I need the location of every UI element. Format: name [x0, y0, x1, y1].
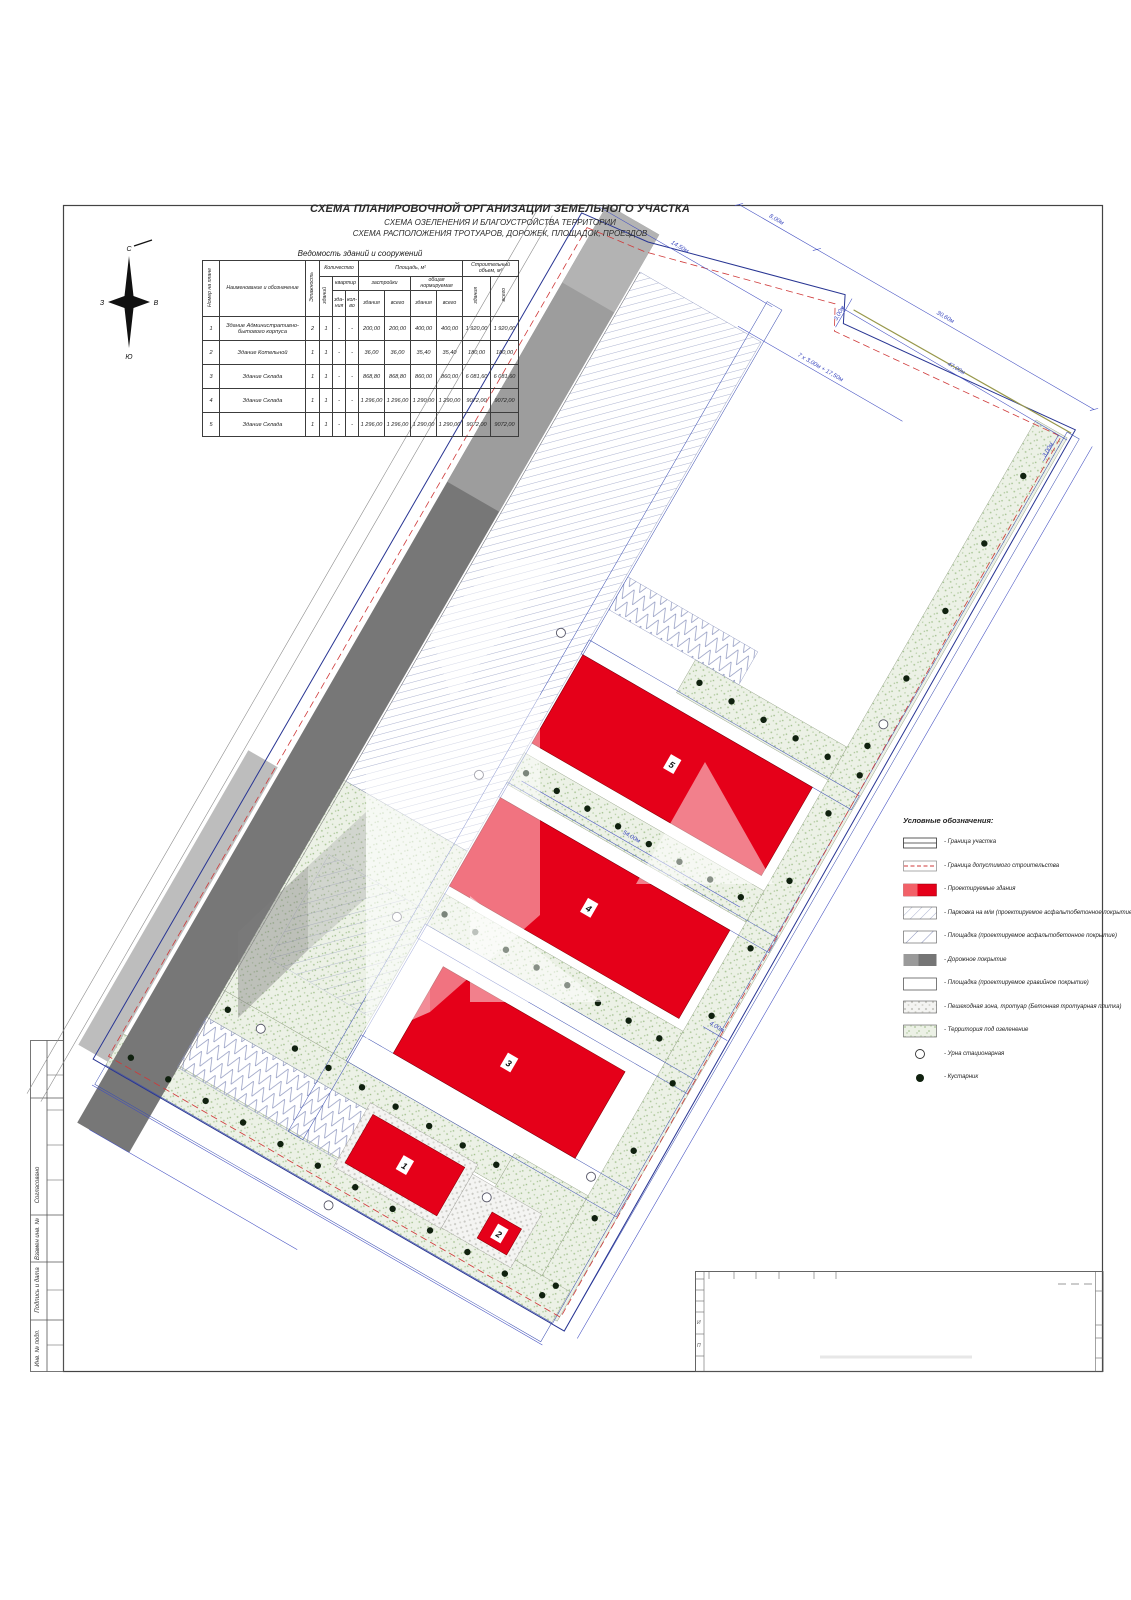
table-cell: 6 081,60: [491, 365, 519, 389]
table-cell: Здание Склада: [220, 413, 306, 437]
margin-label-invnum: Инв. № подл.: [35, 1329, 41, 1366]
col-area: Площадь, м²: [359, 261, 463, 277]
table-cell: -: [333, 413, 346, 437]
legend-label: - Граница участка: [944, 839, 996, 846]
table-cell: 5: [203, 413, 220, 437]
table-cell: -: [346, 389, 359, 413]
col-vol-total: всего: [502, 288, 508, 301]
table-title: Ведомость зданий и сооружений: [202, 249, 518, 258]
compass-south: Ю: [125, 354, 132, 361]
col-apt-bld: зда-ния: [333, 291, 346, 317]
table-cell: -: [333, 365, 346, 389]
col-qty-apt: квартир: [333, 277, 359, 291]
table-cell: Здание Склада: [220, 365, 306, 389]
table-cell: 1: [306, 341, 320, 365]
table-cell: 1: [320, 365, 333, 389]
bush-icon: [903, 1071, 937, 1085]
legend-item-asphalt: - Площадка (проектируемое асфальтобетонн…: [903, 930, 1113, 943]
col-norm-bld: здания: [411, 291, 437, 317]
table-row: 1Здание Административно-бытового корпуса…: [203, 317, 519, 341]
legend-label: - Дорожное покрытие: [944, 957, 1006, 964]
pedestrian-swatch-icon: [903, 1000, 937, 1014]
table-cell: -: [333, 341, 346, 365]
table-cell: 200,00: [359, 317, 385, 341]
compass-west: З: [100, 300, 105, 307]
legend-item-pedestrian: - Пешеходная зона, тротуар (Бетонная тро…: [903, 1001, 1113, 1014]
setback-swatch-icon: [903, 859, 937, 873]
asphalt-swatch-icon: [903, 930, 937, 944]
table-cell: 36,00: [359, 341, 385, 365]
col-floors: Этажность: [310, 272, 316, 302]
table-cell: 1 296,00: [359, 413, 385, 437]
table-cell: -: [346, 341, 359, 365]
road-swatch-icon: [903, 953, 937, 967]
table-cell: 1 296,00: [385, 389, 411, 413]
table-cell: 9072,00: [491, 389, 519, 413]
col-name: Наименование и обозначение: [220, 261, 306, 317]
table-cell: 1: [306, 365, 320, 389]
compass-arrow: [134, 240, 152, 246]
table-cell: Здание Котельной: [220, 341, 306, 365]
table-row: 5Здание Склада11--1 296,001 296,001 290,…: [203, 413, 519, 437]
table-cell: Здание Склада: [220, 389, 306, 413]
parking-swatch-icon: [903, 906, 937, 920]
table-cell: 1: [320, 317, 333, 341]
table-cell: 1 920,00: [463, 317, 491, 341]
col-norm-total: всего: [437, 291, 463, 317]
table-row: 3Здание Склада11--868,80868,80860,00860,…: [203, 365, 519, 389]
table-cell: 180,00: [463, 341, 491, 365]
dimension-label: 14,50м: [670, 240, 690, 255]
table-cell: Здание Административно-бытового корпуса: [220, 317, 306, 341]
col-num: Номер на плане: [208, 268, 214, 307]
table-cell: 1 296,00: [385, 413, 411, 437]
legend-label: - Пешеходная зона, тротуар (Бетонная тро…: [944, 1004, 1121, 1011]
table-cell: 1 290,00: [437, 389, 463, 413]
table-cell: 2: [203, 341, 220, 365]
building-swatch-icon: [903, 883, 937, 897]
legend-item-buildings: - Проектируемые здания: [903, 883, 1113, 896]
compass-rose: С Ю З В: [100, 240, 159, 361]
drawing-sheet: И П С Ю З В: [0, 0, 1131, 1600]
margin-boxes: [31, 1041, 64, 1372]
table-cell: 9072,00: [491, 413, 519, 437]
buildings-register: Ведомость зданий и сооружений Номер на п…: [202, 249, 518, 437]
legend-label: - Площадка (проектируемое гравийное покр…: [944, 980, 1089, 987]
buildings-register-table: Номер на плане Наименование и обозначени…: [202, 260, 519, 437]
table-cell: -: [333, 317, 346, 341]
margin-label-replaced: Взамен инв. №: [35, 1218, 41, 1260]
page-subtitle-2: СХЕМА РАСПОЛОЖЕНИЯ ТРОТУАРОВ, ДОРОЖЕК, П…: [0, 229, 1000, 238]
table-cell: 1 290,00: [411, 389, 437, 413]
table-cell: 860,00: [437, 365, 463, 389]
col-built-bld: здания: [359, 291, 385, 317]
table-cell: 6 081,60: [463, 365, 491, 389]
table-cell: 1: [320, 341, 333, 365]
urn-icon: [585, 1171, 597, 1183]
table-row: 4Здание Склада11--1 296,001 296,001 290,…: [203, 389, 519, 413]
legend-item-bush: - Кустарник: [903, 1071, 1113, 1084]
table-cell: 868,80: [385, 365, 411, 389]
table-cell: 1: [306, 389, 320, 413]
table-cell: 180,00: [491, 341, 519, 365]
legend-item-road: - Дорожное покрытие: [903, 954, 1113, 967]
table-cell: 1: [306, 413, 320, 437]
table-cell: 1 920,00: [491, 317, 519, 341]
col-built-total: всего: [385, 291, 411, 317]
col-qty: Количество: [320, 261, 359, 277]
table-cell: 35,40: [411, 341, 437, 365]
legend-item-gravel: - Площадка (проектируемое гравийное покр…: [903, 977, 1113, 990]
stamp-letter-1: И: [697, 1320, 701, 1326]
col-vol-bld: здания: [474, 287, 480, 304]
margin-label-signdate: Подпись и дата: [35, 1267, 41, 1312]
legend-label: - Проектируемые здания: [944, 886, 1015, 893]
legend-label: - Урна стационарная: [944, 1051, 1004, 1058]
legend-item-setback: - Граница допустимого строительства: [903, 860, 1113, 873]
stamp-letter-2: П: [697, 1343, 701, 1349]
table-cell: 9072,00: [463, 389, 491, 413]
table-cell: 1 290,00: [437, 413, 463, 437]
dimension-label: 30,60м: [935, 310, 955, 325]
col-qty-bld: зданий: [323, 287, 329, 304]
col-area-built: застройки: [359, 277, 411, 291]
table-cell: 4: [203, 389, 220, 413]
table-cell: 860,00: [411, 365, 437, 389]
col-volume: Строительный объем, м³: [463, 261, 519, 277]
legend-item-urn: - Урна стационарная: [903, 1048, 1113, 1061]
table-cell: 400,00: [437, 317, 463, 341]
boundary-swatch-icon: [903, 836, 937, 850]
urn-icon: [903, 1047, 937, 1061]
table-row: 2Здание Котельной11--36,0036,0035,4035,4…: [203, 341, 519, 365]
table-cell: -: [333, 389, 346, 413]
dimension-label: 47,00м: [946, 362, 966, 377]
compass-north: С: [126, 246, 132, 253]
col-apt-cnt: кол-во: [346, 291, 359, 317]
title-block: И П: [696, 1272, 1104, 1372]
legend-item-parking: - Парковка на м/м (проектируемое асфальт…: [903, 907, 1113, 920]
legend-label: - Парковка на м/м (проектируемое асфальт…: [944, 910, 1131, 917]
compass-east: В: [154, 300, 159, 307]
table-cell: 35,40: [437, 341, 463, 365]
page-subtitle-1: СХЕМА ОЗЕЛЕНЕНИЯ И БЛАГОУСТРОЙСТВА ТЕРРИ…: [0, 218, 1000, 227]
dimension-label: 3,00м: [833, 305, 846, 322]
table-cell: 1: [203, 317, 220, 341]
greenery-swatch-icon: [903, 1024, 937, 1038]
table-cell: 868,80: [359, 365, 385, 389]
table-cell: -: [346, 413, 359, 437]
table-cell: 9072,00: [463, 413, 491, 437]
site-plan-canvas: И П С Ю З В: [0, 0, 1131, 1600]
site-plan-group: 54312 8,00м30,60м47,00м14,50м7 х 3,00м +…: [27, 112, 1113, 1394]
compass-star: [108, 256, 150, 348]
table-cell: 1: [320, 389, 333, 413]
table-cell: 1: [320, 413, 333, 437]
legend-label: - Граница допустимого строительства: [944, 863, 1059, 870]
legend-title: Условные обозначения:: [903, 816, 1113, 825]
legend-item-green: - Территория под озеленение: [903, 1024, 1113, 1037]
legend-label: - Кустарник: [944, 1074, 978, 1081]
legend-item-boundary: - Граница участка: [903, 836, 1113, 849]
table-cell: 36,00: [385, 341, 411, 365]
page-title: СХЕМА ПЛАНИРОВОЧНОЙ ОРГАНИЗАЦИИ ЗЕМЕЛЬНО…: [0, 203, 1000, 215]
table-cell: -: [346, 365, 359, 389]
sheet-titles: СХЕМА ПЛАНИРОВОЧНОЙ ОРГАНИЗАЦИИ ЗЕМЕЛЬНО…: [0, 203, 1000, 238]
table-cell: 3: [203, 365, 220, 389]
gravel-swatch-icon: [903, 977, 937, 991]
dimension-label: 7 х 3,00м + 17,50м: [796, 352, 844, 383]
urn-icon: [322, 1199, 334, 1211]
legend: Условные обозначения: - Граница участка …: [903, 816, 1113, 1095]
table-cell: 1 290,00: [411, 413, 437, 437]
col-area-norm: общая нормируемая: [411, 277, 463, 291]
table-cell: 1 296,00: [359, 389, 385, 413]
table-cell: 400,00: [411, 317, 437, 341]
table-cell: 200,00: [385, 317, 411, 341]
table-cell: 2: [306, 317, 320, 341]
margin-label-approved: Согласовано: [35, 1167, 41, 1204]
legend-label: - Площадка (проектируемое асфальтобетонн…: [944, 933, 1117, 940]
table-cell: -: [346, 317, 359, 341]
legend-label: - Территория под озеленение: [944, 1027, 1028, 1034]
